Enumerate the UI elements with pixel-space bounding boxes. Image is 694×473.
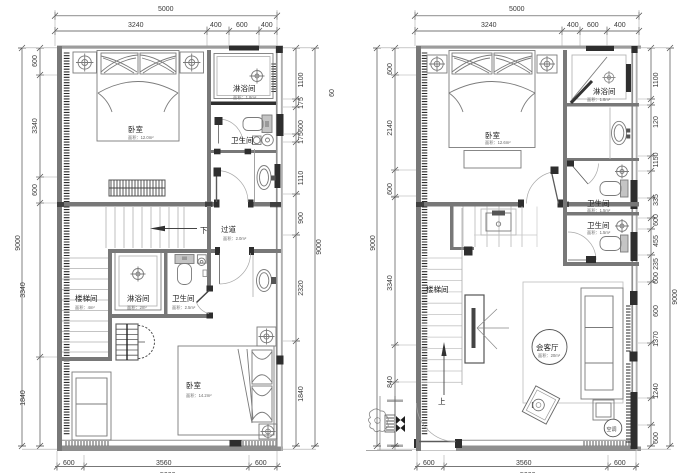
svg-text:600: 600 [387,63,394,75]
svg-text:会客厅: 会客厅 [536,342,559,352]
svg-text:淋浴间: 淋浴间 [127,293,150,303]
svg-text:3560: 3560 [156,460,172,467]
svg-text:1840: 1840 [20,390,27,406]
svg-text:9000: 9000 [672,289,679,305]
svg-text:175: 175 [298,132,305,144]
svg-text:1100: 1100 [298,72,305,87]
svg-text:175: 175 [298,97,305,109]
svg-text:600: 600 [653,305,660,317]
svg-text:400: 400 [567,22,579,29]
svg-text:600: 600 [653,214,660,226]
svg-text:600: 600 [587,22,599,29]
svg-text:1240: 1240 [653,383,660,399]
svg-text:400: 400 [210,22,222,29]
svg-text:60: 60 [329,89,336,97]
svg-text:400: 400 [261,22,273,29]
svg-text:面积：2.5m²: 面积：2.5m² [172,304,196,311]
svg-text:600: 600 [32,184,39,196]
svg-text:楼梯间: 楼梯间 [426,284,449,294]
svg-text:600: 600 [387,183,394,195]
svg-text:面积：1.8m²: 面积：1.8m² [587,96,611,103]
svg-text:卧室: 卧室 [186,380,201,390]
svg-text:面积：2.0m²: 面积：2.0m² [223,235,247,242]
svg-text:面积：1.5m²: 面积：1.5m² [587,207,611,214]
svg-text:2320: 2320 [298,280,305,296]
svg-text:455: 455 [653,235,660,247]
svg-text:卫生间: 卫生间 [231,135,254,145]
svg-text:9000: 9000 [370,235,377,251]
svg-text:600: 600 [32,55,39,67]
svg-text:3340: 3340 [20,282,27,298]
svg-text:楼梯间: 楼梯间 [75,293,98,303]
svg-text:空调: 空调 [607,426,617,433]
svg-text:面积：1.5m²: 面积：1.5m² [587,229,611,236]
svg-text:600: 600 [423,460,435,467]
svg-text:卧室: 卧室 [485,130,500,140]
svg-text:面积：1.8m²: 面积：1.8m² [233,94,257,101]
svg-text:1150: 1150 [653,152,660,167]
svg-text:面积：14.2m²: 面积：14.2m² [186,392,212,399]
svg-text:600: 600 [63,460,75,467]
svg-text:卫生间: 卫生间 [587,220,610,230]
svg-text:1840: 1840 [298,386,305,402]
svg-text:3340: 3340 [387,275,394,291]
svg-text:面积：12.6m²: 面积：12.6m² [485,139,511,146]
svg-text:1100: 1100 [653,72,660,87]
svg-text:面积：4m²: 面积：4m² [75,304,95,311]
svg-text:上: 上 [438,397,446,406]
svg-text:3240: 3240 [128,22,144,29]
svg-text:卫生间: 卫生间 [587,198,610,208]
svg-text:卫生间: 卫生间 [172,293,195,303]
svg-text:3560: 3560 [516,460,532,467]
svg-text:面积：2m²: 面积：2m² [127,304,147,311]
svg-text:1370: 1370 [653,331,660,347]
svg-text:120: 120 [653,116,660,128]
svg-text:600: 600 [255,460,267,467]
svg-text:3240: 3240 [481,22,497,29]
svg-text:900: 900 [298,212,305,224]
svg-text:5000: 5000 [509,6,525,13]
svg-text:下: 下 [200,226,208,235]
svg-text:淋浴间: 淋浴间 [233,83,256,93]
svg-text:600: 600 [236,22,248,29]
svg-text:5000: 5000 [158,6,174,13]
svg-text:2140: 2140 [387,120,394,136]
svg-text:600: 600 [614,460,626,467]
svg-text:9000: 9000 [316,239,323,255]
svg-text:600: 600 [298,120,305,132]
svg-text:600: 600 [653,432,660,444]
svg-text:面积：12.0m²: 面积：12.0m² [128,134,154,141]
svg-text:9000: 9000 [15,235,22,251]
svg-text:面积：20m²: 面积：20m² [538,352,561,359]
svg-text:过道: 过道 [221,224,236,234]
svg-text:淋浴间: 淋浴间 [593,86,616,96]
svg-text:卧室: 卧室 [128,124,143,134]
svg-text:840: 840 [387,376,394,388]
svg-text:1110: 1110 [298,171,305,186]
svg-text:600: 600 [653,272,660,284]
svg-text:400: 400 [614,22,626,29]
svg-text:235: 235 [653,258,660,270]
svg-text:335: 335 [653,194,660,206]
svg-text:3340: 3340 [32,118,39,134]
